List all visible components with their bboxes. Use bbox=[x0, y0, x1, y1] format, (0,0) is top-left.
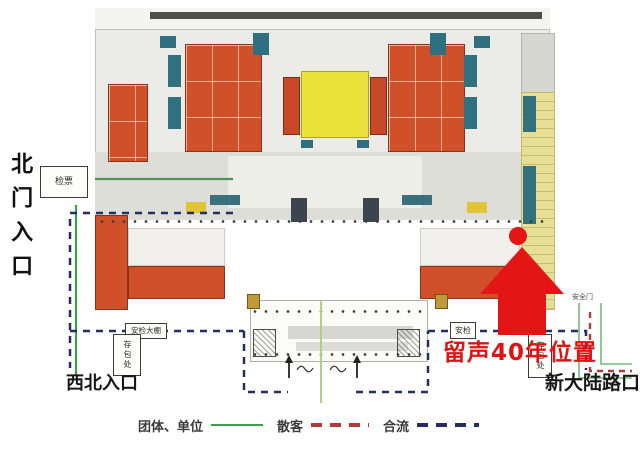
road-corner-label: 新大陆路口 bbox=[545, 374, 640, 394]
legend-merged-line-icon bbox=[417, 423, 479, 427]
bag-storage-west-label: 存包处 bbox=[123, 340, 131, 370]
ticket-check-label: 检票 bbox=[55, 178, 73, 187]
bag-storage-west-box: 存包处 bbox=[113, 334, 141, 376]
route-merged-west bbox=[70, 213, 233, 368]
security-east-box: 安检 bbox=[450, 322, 476, 339]
safety-gate-label: 安全门 bbox=[572, 294, 593, 301]
security-east-label: 安检 bbox=[455, 327, 471, 335]
gate-wavy-east bbox=[330, 366, 346, 372]
gate-arrowhead-east bbox=[353, 355, 361, 363]
arrow-up-icon bbox=[480, 247, 564, 294]
gate-arrowhead-west bbox=[285, 355, 293, 363]
legend: 团体、单位 散客 合流 bbox=[138, 414, 493, 436]
ticket-check-box: 检票 bbox=[40, 166, 88, 198]
northwest-entrance-label: 西北入口 bbox=[66, 375, 138, 394]
legend-group-line-icon bbox=[211, 424, 263, 427]
north-entrance-label: 北门入口 bbox=[8, 152, 31, 288]
floor-plan-map: 检票 安检大棚 安检 存包处 存包处 安全门 北门入口 西北入口 新大陆路口 留… bbox=[0, 0, 640, 453]
legend-group-label: 团体、单位 bbox=[138, 416, 203, 435]
highlight-location-label: 留声40年位置 bbox=[443, 341, 597, 365]
road-edge-inner bbox=[601, 303, 632, 364]
location-dot-icon bbox=[509, 227, 527, 245]
gate-wavy-west bbox=[297, 366, 313, 372]
legend-individual-line-icon bbox=[311, 423, 369, 427]
arrow-shaft bbox=[498, 292, 546, 335]
legend-merged-label: 合流 bbox=[383, 416, 409, 435]
route-merged-south-u bbox=[244, 331, 428, 392]
legend-individual-label: 散客 bbox=[277, 416, 303, 435]
